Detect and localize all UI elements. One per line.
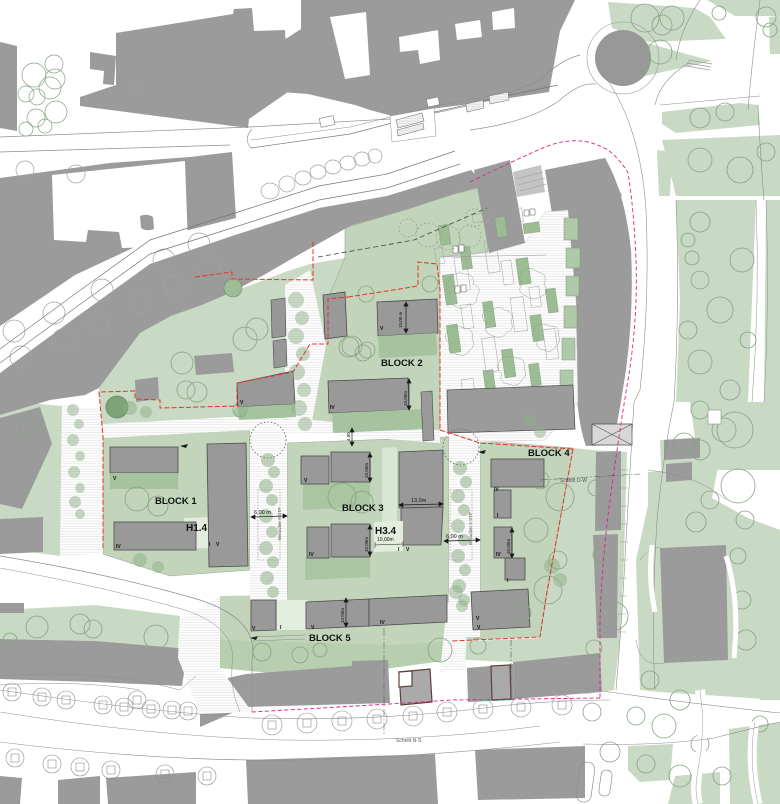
svg-text:10,00m: 10,00m [506,539,511,554]
svg-text:H3.4: H3.4 [375,526,397,537]
svg-text:Besucher 9 STP: Besucher 9 STP [468,512,473,545]
svg-text:4,00: 4,00 [346,432,351,441]
svg-text:IV: IV [330,405,335,411]
svg-text:IV: IV [496,552,501,558]
svg-text:10,00m: 10,00m [364,463,369,478]
svg-text:10,00 m: 10,00 m [398,311,403,328]
svg-text:IV: IV [309,552,314,558]
svg-text:IV: IV [380,620,385,626]
svg-text:Schnitt O-W: Schnitt O-W [560,478,587,484]
svg-text:IV: IV [494,487,499,493]
svg-text:13,0m: 13,0m [411,498,427,504]
svg-text:6,00 m: 6,00 m [446,534,463,540]
svg-text:10,00m: 10,00m [403,391,408,406]
svg-text:BLOCK 2: BLOCK 2 [381,358,423,369]
svg-text:Schnitt N-S: Schnitt N-S [396,738,422,744]
svg-text:IV: IV [116,544,121,550]
svg-text:10,00m: 10,00m [377,537,394,543]
svg-text:H1.4: H1.4 [186,523,208,534]
svg-text:Besucher 9 STP: Besucher 9 STP [277,507,282,540]
svg-text:BLOCK 5: BLOCK 5 [309,633,351,644]
svg-text:BLOCK 3: BLOCK 3 [342,503,384,514]
svg-text:6,00 m: 6,00 m [254,510,271,516]
svg-text:10,00m: 10,00m [340,608,345,623]
svg-text:10,00m: 10,00m [364,537,369,552]
svg-text:BLOCK 1: BLOCK 1 [155,496,197,507]
svg-text:BLOCK 4: BLOCK 4 [528,448,570,459]
